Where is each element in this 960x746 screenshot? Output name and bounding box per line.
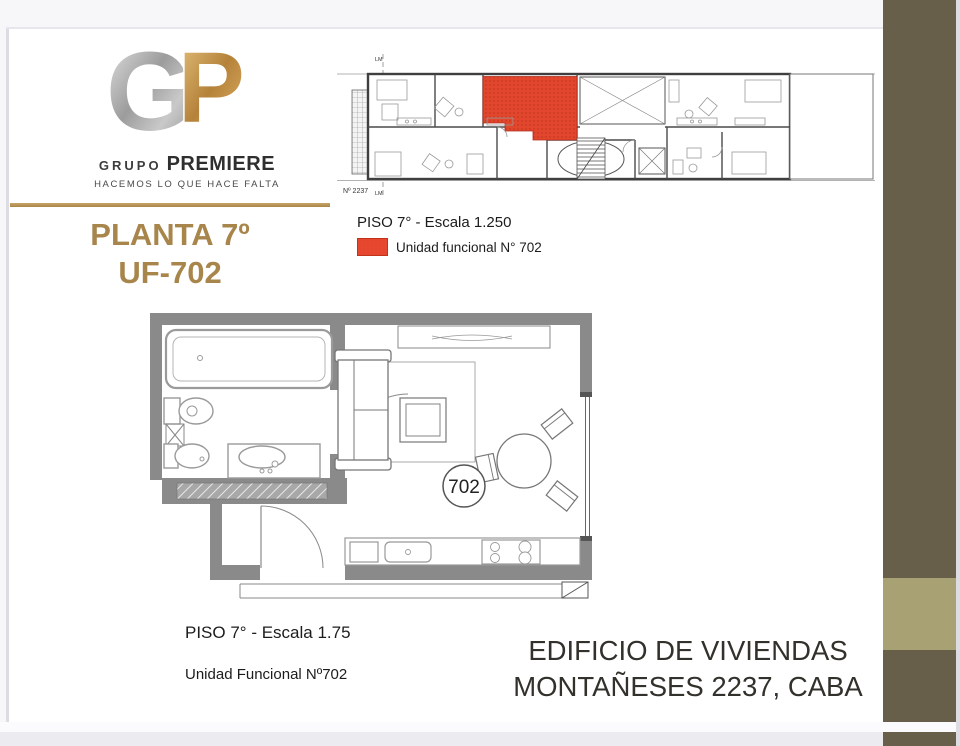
bathtub	[166, 330, 332, 388]
unit-702-plan: 702	[142, 306, 602, 606]
unit-plan-subcaption: Unidad Funcional Nº702	[185, 666, 347, 683]
gold-divider	[10, 203, 330, 207]
slide-edge-left	[6, 28, 9, 722]
entrance-door	[261, 506, 323, 568]
logo-letter-p: P	[178, 32, 245, 144]
balcony-edge	[240, 582, 588, 598]
sidebar-bottom-segment	[883, 732, 956, 746]
address-line1: EDIFICIO DE VIVIENDAS	[492, 633, 884, 669]
coffee-table	[400, 398, 446, 442]
street-number-label: Nº 2237	[343, 188, 368, 195]
slide-edge-top	[6, 27, 883, 29]
sidebar-light-band	[883, 578, 956, 650]
legend-red-swatch	[357, 238, 388, 256]
legend-label: Unidad funcional N° 702	[396, 240, 542, 255]
unit-plan-caption: PISO 7° - Escala 1.75	[185, 623, 351, 643]
dining-table	[497, 434, 551, 488]
balcony-strip	[352, 90, 368, 174]
lm-marker-bottom: LM	[375, 191, 383, 197]
window-right	[580, 392, 592, 541]
void-x-area	[580, 77, 665, 124]
title-line2: UF-702	[15, 254, 325, 292]
floor-overview-plan: LM LM Nº 2237	[337, 52, 877, 198]
terrace-outline	[790, 74, 873, 179]
toilet	[164, 398, 213, 424]
shaft-x-box	[166, 424, 184, 446]
sofa	[335, 350, 391, 470]
overview-caption: PISO 7° - Escala 1.250	[357, 214, 511, 231]
unit-number-badge: 702	[443, 465, 485, 507]
duct-shaft-hatch	[177, 483, 327, 499]
closet-top	[398, 326, 550, 348]
bottom-gray-strip	[0, 732, 883, 746]
lm-marker-top: LM	[375, 57, 383, 63]
title-line1: PLANTA 7º	[15, 216, 325, 254]
building-address: EDIFICIO DE VIVIENDAS MONTAÑESES 2237, C…	[492, 633, 884, 705]
slide-edge-right	[956, 0, 960, 746]
bidet	[164, 444, 209, 468]
page-title: PLANTA 7º UF-702	[15, 216, 325, 292]
fridge	[350, 542, 378, 562]
address-line2: MONTAÑESES 2237, CABA	[492, 669, 884, 705]
company-logo: G P GRUPOPREMIERE HACEMOS LO QUE HACE FA…	[92, 30, 282, 190]
logo-name-premiere: PREMIERE	[167, 153, 275, 175]
bottom-white-band	[0, 722, 960, 732]
gp-logo-icon: G P	[102, 30, 272, 146]
logo-name-grupo: GRUPO	[99, 158, 162, 173]
unit-number: 702	[448, 477, 480, 498]
washbasin	[228, 444, 320, 478]
logo-tagline: HACEMOS LO QUE HACE FALTA	[92, 179, 282, 190]
kitchen-counter	[345, 538, 580, 565]
overview-legend: Unidad funcional N° 702	[357, 238, 542, 256]
slide-canvas: G P GRUPOPREMIERE HACEMOS LO QUE HACE FA…	[0, 0, 960, 746]
